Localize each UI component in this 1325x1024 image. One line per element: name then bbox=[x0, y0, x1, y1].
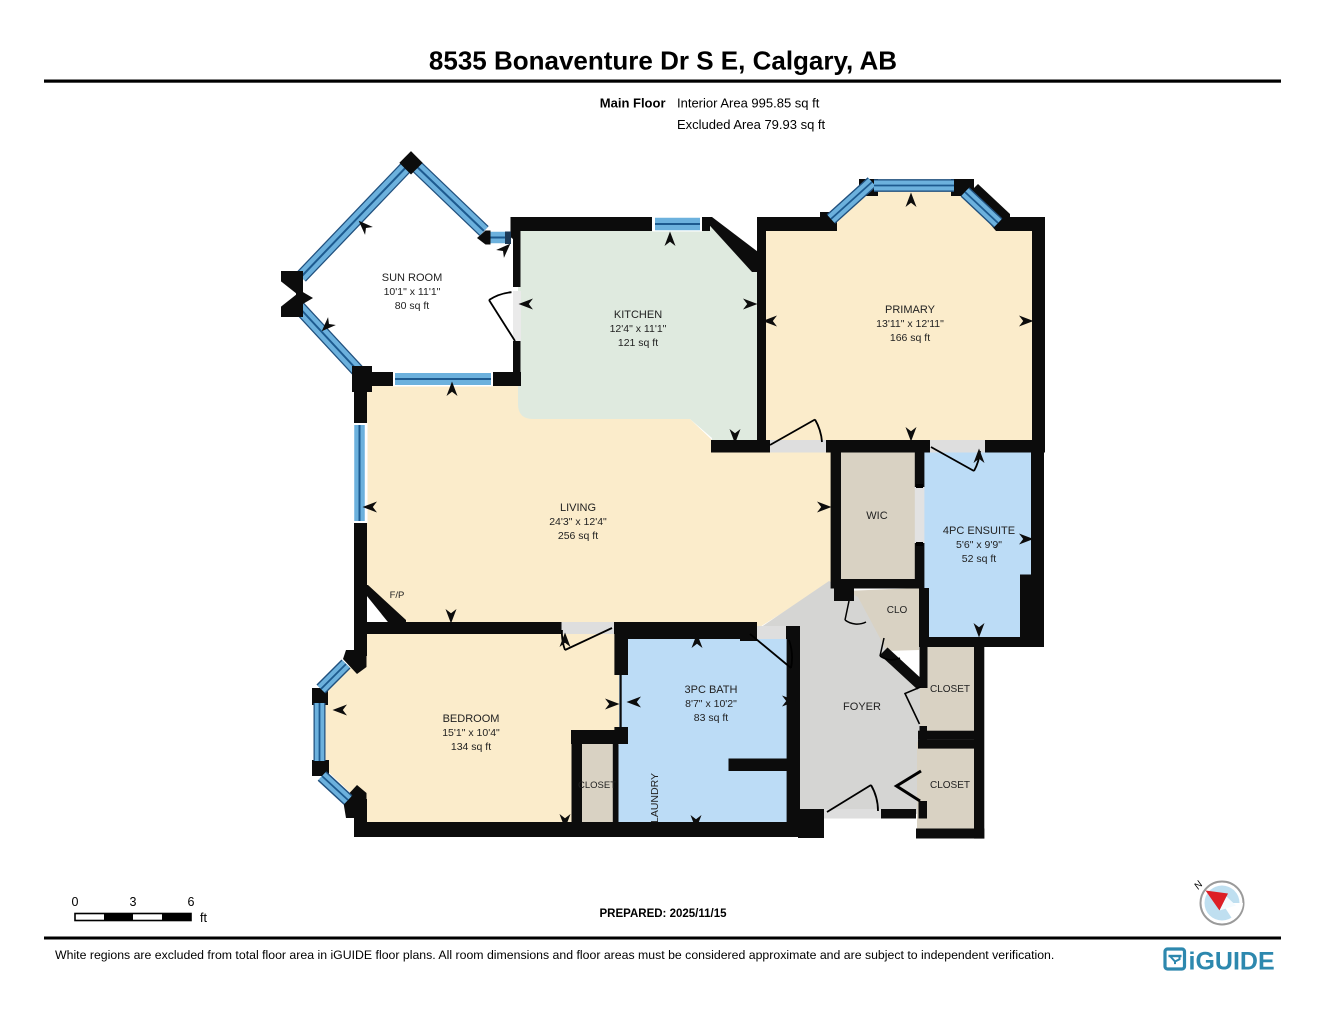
svg-text:CLOSET: CLOSET bbox=[930, 780, 970, 791]
svg-text:iGUIDE: iGUIDE bbox=[1189, 948, 1275, 976]
svg-text:10'1" x 11'1": 10'1" x 11'1" bbox=[384, 286, 441, 298]
svg-text:BEDROOM: BEDROOM bbox=[443, 713, 500, 725]
svg-text:Main Floor: Main Floor bbox=[600, 96, 666, 111]
svg-text:White regions are excluded fro: White regions are excluded from total fl… bbox=[55, 948, 1054, 962]
svg-text:5'6" x 9'9": 5'6" x 9'9" bbox=[956, 539, 1002, 551]
svg-text:8535 Bonaventure Dr S E, Calga: 8535 Bonaventure Dr S E, Calgary, AB bbox=[429, 46, 897, 76]
svg-text:166 sq ft: 166 sq ft bbox=[890, 332, 930, 344]
svg-text:12'4" x 11'1": 12'4" x 11'1" bbox=[610, 323, 667, 335]
svg-text:0: 0 bbox=[72, 895, 79, 909]
svg-text:WIC: WIC bbox=[866, 510, 887, 522]
svg-text:13'11" x 12'11": 13'11" x 12'11" bbox=[876, 318, 944, 330]
svg-text:PREPARED: 2025/11/15: PREPARED: 2025/11/15 bbox=[600, 908, 728, 920]
svg-text:134 sq ft: 134 sq ft bbox=[451, 741, 491, 753]
svg-text:256 sq ft: 256 sq ft bbox=[558, 530, 598, 542]
svg-text:Excluded Area 79.93 sq ft: Excluded Area 79.93 sq ft bbox=[677, 117, 826, 132]
svg-text:80 sq ft: 80 sq ft bbox=[395, 300, 430, 312]
svg-text:3PC BATH: 3PC BATH bbox=[685, 684, 738, 696]
svg-text:ft: ft bbox=[200, 911, 207, 925]
svg-text:CLOSET: CLOSET bbox=[930, 684, 970, 695]
svg-text:SUN ROOM: SUN ROOM bbox=[382, 272, 443, 284]
svg-text:CLO: CLO bbox=[887, 605, 908, 616]
svg-text:FOYER: FOYER bbox=[843, 701, 881, 713]
svg-text:PRIMARY: PRIMARY bbox=[885, 304, 936, 316]
svg-text:F/P: F/P bbox=[390, 590, 405, 601]
svg-text:83 sq ft: 83 sq ft bbox=[694, 712, 729, 724]
svg-text:CLOSET: CLOSET bbox=[578, 780, 616, 791]
svg-text:LIVING: LIVING bbox=[560, 502, 596, 514]
svg-text:24'3" x 12'4": 24'3" x 12'4" bbox=[549, 516, 607, 528]
svg-text:121 sq ft: 121 sq ft bbox=[618, 337, 658, 349]
svg-text:Interior Area 995.85 sq ft: Interior Area 995.85 sq ft bbox=[677, 96, 820, 111]
svg-text:6: 6 bbox=[188, 895, 195, 909]
svg-text:LAUNDRY: LAUNDRY bbox=[649, 773, 661, 823]
svg-text:8'7" x 10'2": 8'7" x 10'2" bbox=[685, 698, 737, 710]
svg-text:KITCHEN: KITCHEN bbox=[614, 309, 662, 321]
svg-text:4PC ENSUITE: 4PC ENSUITE bbox=[943, 525, 1015, 537]
svg-text:3: 3 bbox=[130, 895, 137, 909]
svg-text:15'1" x 10'4": 15'1" x 10'4" bbox=[442, 727, 500, 739]
svg-text:52 sq ft: 52 sq ft bbox=[962, 553, 997, 565]
